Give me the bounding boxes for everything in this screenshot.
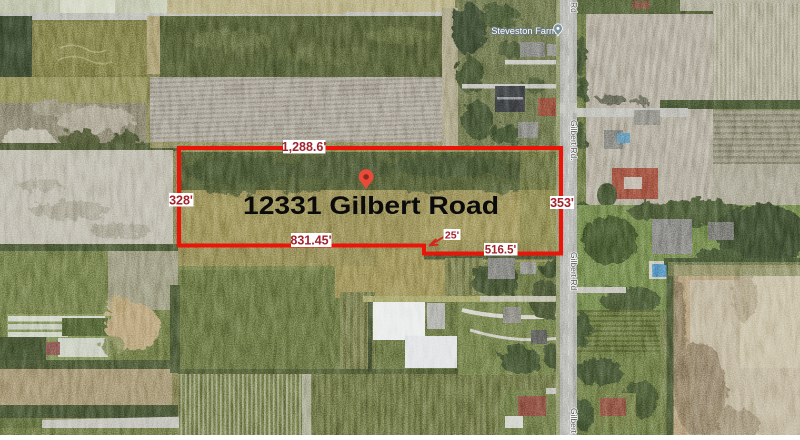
svg-text:831.45': 831.45' — [290, 234, 331, 248]
svg-text:353': 353' — [550, 196, 574, 210]
svg-text:25': 25' — [445, 230, 459, 242]
svg-text:12331 Gilbert Road: 12331 Gilbert Road — [243, 192, 499, 220]
svg-text:328': 328' — [169, 193, 193, 207]
svg-text:Rd: Rd — [569, 2, 579, 13]
svg-text:Gilbert Rd: Gilbert Rd — [569, 252, 579, 291]
svg-text:1,288.6': 1,288.6' — [282, 140, 327, 154]
svg-text:Steveston Farm: Steveston Farm — [491, 26, 557, 36]
svg-text:Gilbert: Gilbert — [569, 408, 579, 434]
svg-text:Gilbert Rd.: Gilbert Rd. — [569, 120, 579, 161]
svg-text:516.5': 516.5' — [485, 245, 517, 257]
